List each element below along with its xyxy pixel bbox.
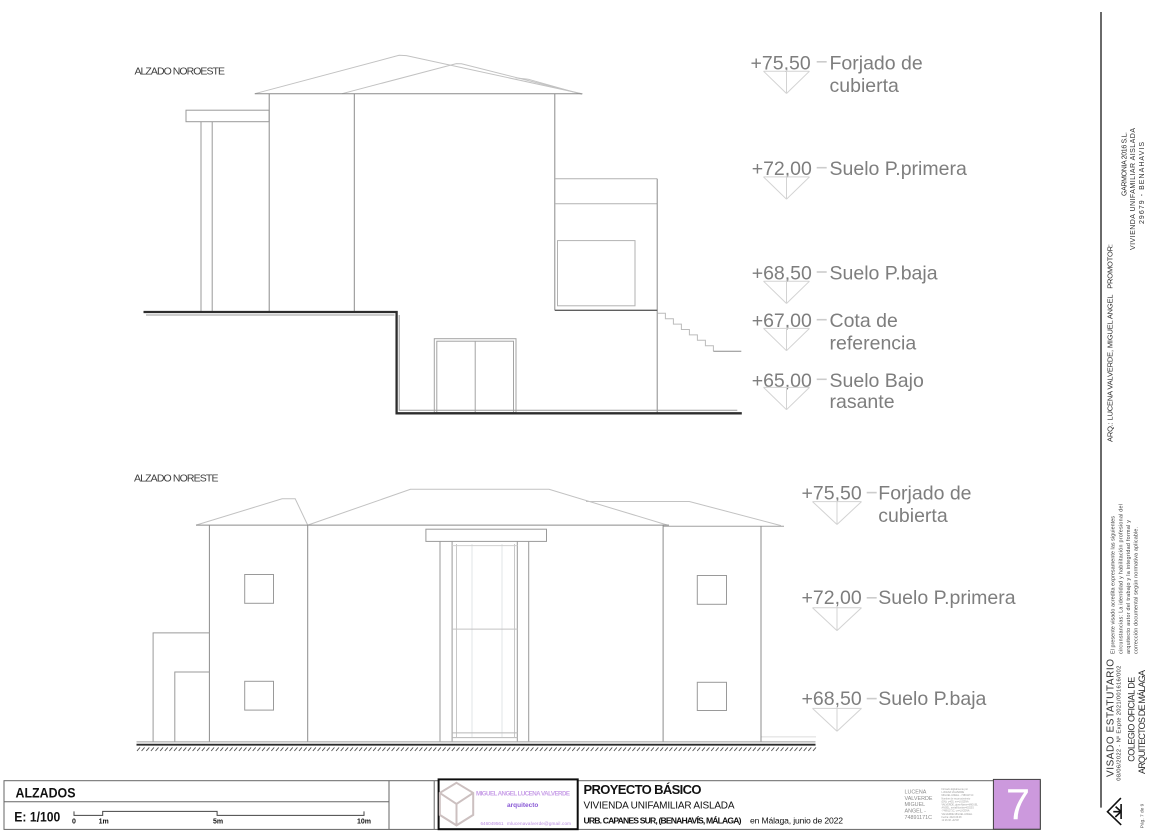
svg-text:circunstancias: La identidad y: circunstancias: La identidad y habilitac… [1118, 504, 1124, 654]
svg-text:VIVIENDA UNIFAMILIAR AISLADA: VIVIENDA UNIFAMILIAR AISLADA [1130, 128, 1137, 250]
svg-text:Suelo P.primera: Suelo P.primera [830, 158, 967, 180]
svg-text:Cota de: Cota de [830, 310, 898, 332]
svg-text:corrección documental según no: corrección documental según normativa ap… [1134, 527, 1140, 654]
svg-text:Suelo P.primera: Suelo P.primera [878, 587, 1015, 609]
svg-text:cubierta: cubierta [830, 75, 900, 97]
svg-text:08/06/2022 - Nº Expte 2021/001: 08/06/2022 - Nº Expte 2021/001616/002 [1116, 666, 1123, 781]
svg-text:74891171C: 74891171C [905, 815, 933, 821]
svg-text:referencia: referencia [830, 333, 917, 355]
svg-text:arquitecto: arquitecto [507, 802, 538, 809]
svg-text:GARMONIA 2016 S.L.: GARMONIA 2016 S.L. [1122, 132, 1129, 196]
svg-text:Forjado de: Forjado de [878, 482, 971, 504]
svg-text:rasante: rasante [830, 391, 895, 413]
svg-text:MIGUEL: MIGUEL [905, 802, 926, 808]
svg-text:Suelo Bajo: Suelo Bajo [830, 370, 924, 392]
svg-text:5m: 5m [213, 819, 223, 826]
svg-text:Suelo P.baja: Suelo P.baja [878, 688, 986, 710]
svg-text:0: 0 [72, 819, 76, 826]
svg-text:en Málaga, junio de 2022: en Málaga, junio de 2022 [750, 816, 843, 826]
svg-text:ALZADOS: ALZADOS [16, 785, 76, 801]
svg-text:ALZADO NOROESTE: ALZADO NOROESTE [135, 66, 226, 78]
svg-text:PROYECTO BÁSICO: PROYECTO BÁSICO [584, 782, 702, 797]
svg-text:ALZADO NORESTE: ALZADO NORESTE [134, 473, 219, 485]
svg-text:arquitecto autor del trabajo y: arquitecto autor del trabajo y la integr… [1126, 520, 1132, 654]
svg-text:Forjado de: Forjado de [830, 52, 923, 74]
svg-text:cubierta: cubierta [878, 505, 948, 527]
svg-text:ANGEL -: ANGEL - [905, 809, 927, 815]
svg-text:7: 7 [1006, 782, 1030, 830]
svg-text:+68,50: +68,50 [802, 688, 862, 710]
svg-text:COLEGIO OFICIAL DE: COLEGIO OFICIAL DE [1127, 677, 1137, 762]
svg-text:URB. CAPANES SUR, (BENAHAVÍS,: URB. CAPANES SUR, (BENAHAVÍS, MÁLAGA) [584, 816, 742, 826]
svg-text:VALVERDE: VALVERDE [905, 796, 933, 802]
svg-text:E: 1/100: E: 1/100 [14, 809, 60, 825]
svg-text:29679 - BENAHAVIS: 29679 - BENAHAVIS [1139, 142, 1146, 224]
svg-text:646049561: 646049561 [481, 821, 504, 826]
svg-text:10m: 10m [357, 819, 371, 826]
svg-text:ARQUITECTOS DE MÁLAGA: ARQUITECTOS DE MÁLAGA [1137, 670, 1147, 774]
svg-text:LUCENA: LUCENA [905, 790, 927, 796]
svg-text:+75,50: +75,50 [802, 482, 862, 504]
svg-text:ARQ.: LUCENA VALVERDE, MIGUEL: ARQ.: LUCENA VALVERDE, MIGUEL ANGEL PROM… [1106, 244, 1115, 442]
svg-text:mlucenavalverde@gmail.com: mlucenavalverde@gmail.com [507, 821, 571, 826]
svg-text:1m: 1m [99, 819, 109, 826]
svg-text:+67,00: +67,00 [752, 310, 812, 332]
svg-text:El presente visado acredita ex: El presente visado acredita expresamente… [1111, 516, 1117, 654]
svg-text:+72,00: +72,00 [802, 587, 862, 609]
svg-text:Suelo P.baja: Suelo P.baja [830, 263, 938, 285]
svg-text:VISADO ESTATUTARIO: VISADO ESTATUTARIO [1106, 659, 1117, 777]
svg-text:Pág. 7 de 9: Pág. 7 de 9 [1140, 803, 1146, 828]
svg-text:12:26:38 +02'00': 12:26:38 +02'00' [942, 819, 960, 822]
svg-text:MIGUEL ANGEL LUCENA VALVERDE: MIGUEL ANGEL LUCENA VALVERDE [476, 791, 570, 798]
svg-text:+65,00: +65,00 [752, 370, 812, 392]
svg-text:VIVIENDA UNIFAMILIAR AISLADA: VIVIENDA UNIFAMILIAR AISLADA [584, 800, 735, 811]
